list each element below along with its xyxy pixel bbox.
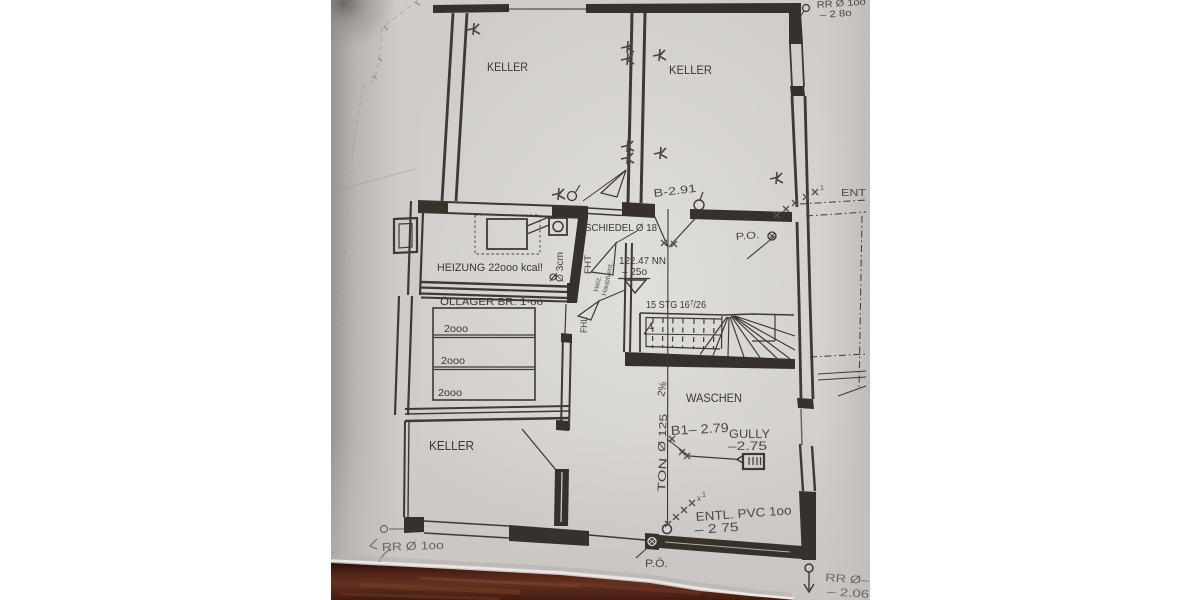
svg-text:Ø 3cm: Ø 3cm [555, 252, 566, 282]
svg-text:15 STG 167/26: 15 STG 167/26 [646, 300, 706, 311]
svg-text:WASCHEN: WASCHEN [686, 391, 742, 405]
svg-text:2ooo: 2ooo [444, 324, 468, 335]
svg-text:–2.75: –2.75 [728, 439, 767, 453]
svg-text:– 25o: – 25o [622, 266, 647, 278]
svg-text:2ooo: 2ooo [441, 356, 465, 367]
svg-text:SCHIEDEL Ø 18: SCHIEDEL Ø 18 [585, 222, 657, 234]
svg-text:P.O.: P.O. [735, 230, 760, 243]
svg-text:2ooo: 2ooo [438, 388, 462, 399]
svg-text:KELLER: KELLER [669, 63, 712, 77]
svg-text:1: 1 [702, 492, 706, 499]
svg-text:1: 1 [649, 321, 654, 331]
svg-text:– 2.06: – 2.06 [827, 586, 870, 600]
svg-text:– 2 8o: – 2 8o [819, 8, 852, 21]
svg-text:FHL: FHL [579, 317, 590, 333]
svg-text:1: 1 [820, 185, 824, 192]
svg-text:B1– 2.79: B1– 2.79 [670, 420, 729, 438]
svg-text:RR Ø 1oo: RR Ø 1oo [382, 540, 444, 554]
svg-text:TON: TON [656, 458, 670, 493]
svg-text:x: x [697, 494, 701, 503]
svg-text:Ø 125: Ø 125 [656, 413, 670, 452]
svg-text:ENT: ENT [841, 188, 866, 199]
svg-text:KELLER: KELLER [429, 438, 474, 453]
svg-text:KELLER: KELLER [487, 60, 528, 74]
svg-text:P.Ö.: P.Ö. [645, 558, 668, 570]
svg-text:FHT: FHT [583, 255, 594, 274]
svg-text:HEIZUNG 22ooo kcal!: HEIZUNG 22ooo kcal! [437, 262, 543, 274]
svg-text:ÖLLAGER BR. 1·oo: ÖLLAGER BR. 1·oo [440, 296, 543, 308]
